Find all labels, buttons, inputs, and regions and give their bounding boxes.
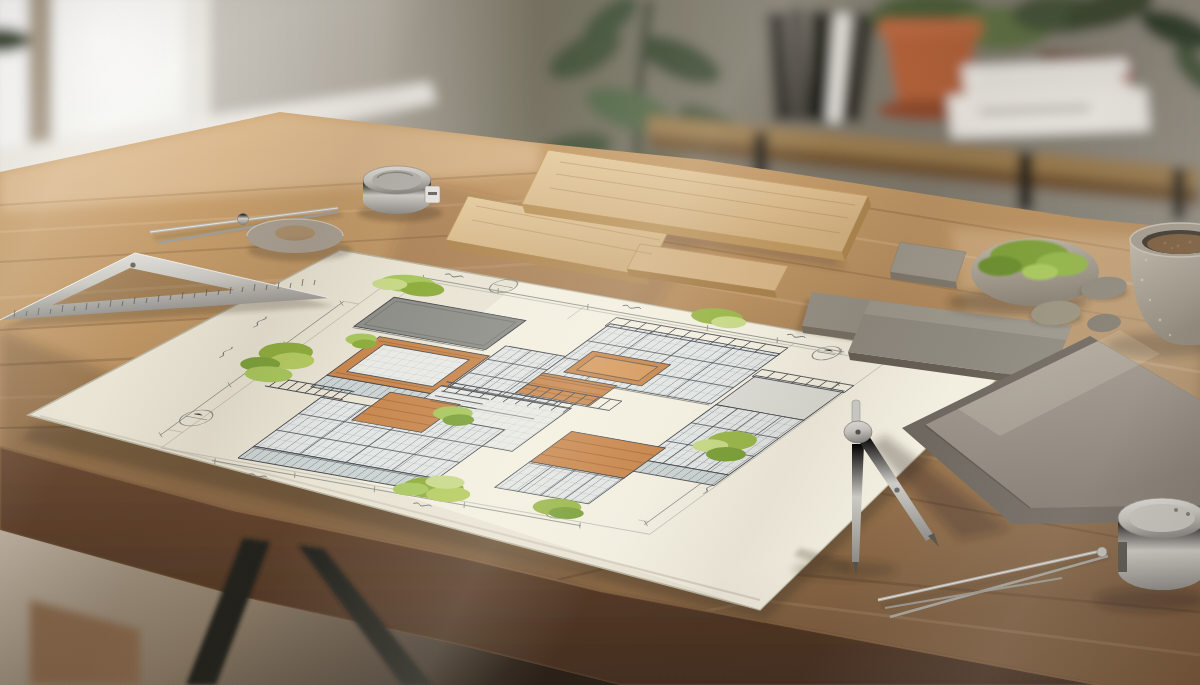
book-accent — [1122, 74, 1130, 82]
adjusting-knob — [238, 214, 249, 225]
photo-scene — [0, 0, 1200, 685]
tape-slot — [1118, 542, 1127, 572]
leaning-books — [766, 8, 876, 123]
window-mullion — [28, 0, 56, 165]
window-frame — [184, 0, 210, 125]
shelf-leg — [1018, 152, 1033, 212]
scene-svg — [0, 0, 1200, 685]
pot-rim — [880, 20, 982, 36]
book-bottom — [948, 88, 1150, 138]
needle-hinge — [1097, 547, 1107, 557]
hanging-hole — [130, 262, 135, 267]
shelf-leg — [1172, 168, 1186, 220]
